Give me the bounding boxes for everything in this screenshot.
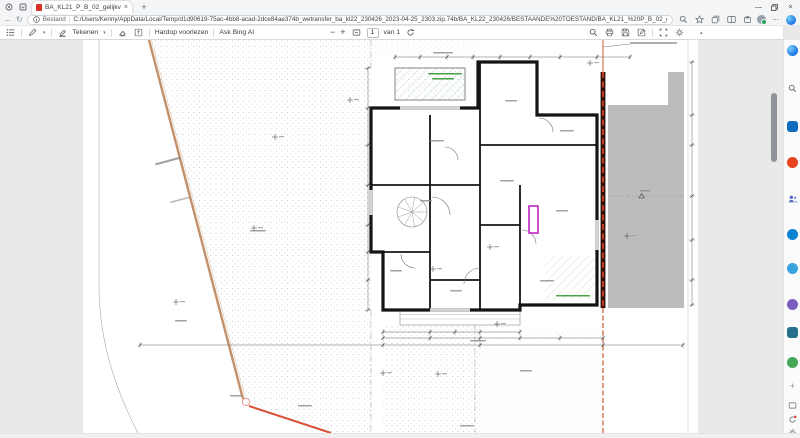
tab-close-icon[interactable]: × (124, 4, 128, 11)
page-number-input[interactable]: 1 (367, 28, 379, 38)
collections-icon[interactable] (709, 14, 721, 26)
draw-label[interactable]: Tekenen (73, 29, 99, 36)
file-scheme-label: Bestand (43, 16, 66, 23)
eraser-icon[interactable] (117, 27, 128, 38)
green-zone (545, 255, 596, 300)
sidebar-outlook-icon[interactable] (787, 263, 798, 274)
sidebar-search-icon[interactable] (787, 83, 798, 94)
address-bar: ← ↻ Bestand | C:/Users/Kenny/AppData/Loc… (0, 14, 800, 26)
save-icon[interactable] (620, 27, 631, 38)
tab-strip: BA_KL21_P_B_02_gelijkvloers 0... × + — × (0, 0, 800, 14)
pen-icon[interactable] (27, 27, 38, 38)
pdf-toolbar: ▾ Tekenen ▾ Hardop voorlezen Ask Bing AI… (0, 26, 783, 40)
sidebar-games-icon[interactable] (787, 357, 798, 368)
read-aloud-button[interactable]: Hardop voorlezen (155, 29, 209, 36)
sidebar-designer-icon[interactable] (787, 327, 798, 338)
sidebar-add-icon[interactable]: + (787, 380, 798, 391)
add-text-icon[interactable] (133, 27, 144, 38)
sidebar-people-icon[interactable] (787, 193, 798, 204)
fit-page-icon[interactable] (351, 27, 362, 38)
copilot-icon[interactable] (786, 15, 796, 25)
info-icon (33, 16, 40, 23)
sidebar-drop-icon[interactable] (787, 121, 798, 132)
profile-avatar[interactable] (757, 15, 766, 24)
sidebar-shopping-icon[interactable] (787, 157, 798, 168)
new-tab-button[interactable]: + (138, 2, 150, 13)
highlighter-icon[interactable] (57, 27, 68, 38)
top-annotation (630, 42, 677, 44)
floor-plan-drawing (83, 40, 698, 433)
toc-icon[interactable] (5, 27, 16, 38)
edge-sidebar: + (783, 40, 800, 433)
pdf-viewport[interactable] (0, 40, 783, 433)
search-icon[interactable] (677, 14, 689, 26)
url-text: C:/Users/Kenny/AppData/Local/Temp/d1d906… (73, 16, 667, 23)
settings-menu-icon[interactable]: ⋯ (770, 14, 782, 26)
print-icon[interactable] (604, 27, 615, 38)
split-screen-icon[interactable] (725, 14, 737, 26)
site-hatch-area (149, 40, 372, 433)
sidebar-skype-icon[interactable] (787, 229, 798, 240)
minimize-button[interactable]: — (751, 1, 766, 13)
active-tab[interactable]: BA_KL21_P_B_02_gelijkvloers 0... × (32, 1, 132, 14)
favorites-star-icon[interactable] (693, 14, 705, 26)
save-as-icon[interactable] (636, 27, 647, 38)
find-in-pdf-icon[interactable] (588, 27, 599, 38)
horizontal-scrollbar-track[interactable] (0, 433, 800, 438)
magenta-highlight (529, 206, 538, 233)
neighbor-building-upper (668, 72, 684, 105)
restore-button[interactable] (767, 1, 782, 13)
url-field[interactable]: Bestand | C:/Users/Kenny/AppData/Local/T… (27, 15, 673, 25)
sidebar-screenshot-icon[interactable] (787, 400, 798, 411)
tab-search-icon[interactable] (17, 2, 29, 12)
pdf-page (83, 40, 698, 433)
browser-window: BA_KL21_P_B_02_gelijkvloers 0... × + — ×… (0, 0, 800, 438)
zoom-out-icon[interactable]: − (330, 28, 335, 37)
page-total-label: van 1 (384, 29, 401, 36)
neighbor-building (608, 105, 684, 308)
vertical-scrollbar-thumb[interactable] (771, 93, 777, 162)
collapse-toolbar-icon[interactable]: ▴ (700, 30, 703, 36)
ask-bing-button[interactable]: Ask Bing AI (219, 29, 254, 36)
extensions-icon[interactable] (741, 14, 753, 26)
scheme-divider: | (69, 16, 71, 23)
workspaces-icon[interactable] (3, 2, 15, 12)
street-name-label (155, 157, 181, 166)
back-icon[interactable]: ← (4, 16, 12, 24)
rotate-icon[interactable] (405, 27, 416, 38)
zoom-in-icon[interactable]: + (340, 28, 345, 37)
road-edge-line (99, 40, 138, 433)
more-options-icon[interactable] (674, 27, 685, 38)
sidebar-m365-icon[interactable] (787, 299, 798, 310)
fullscreen-icon[interactable] (658, 27, 669, 38)
refresh-icon[interactable]: ↻ (16, 16, 23, 24)
pen-dropdown-icon[interactable]: ▾ (43, 30, 46, 36)
draw-dropdown-icon[interactable]: ▾ (103, 30, 106, 36)
sidebar-feedback-icon[interactable] (787, 414, 798, 425)
sidebar-copilot-icon[interactable] (787, 45, 798, 56)
tab-title: BA_KL21_P_B_02_gelijkvloers 0... (45, 4, 121, 11)
pdf-favicon-icon (36, 4, 42, 11)
close-button[interactable]: × (783, 1, 798, 13)
